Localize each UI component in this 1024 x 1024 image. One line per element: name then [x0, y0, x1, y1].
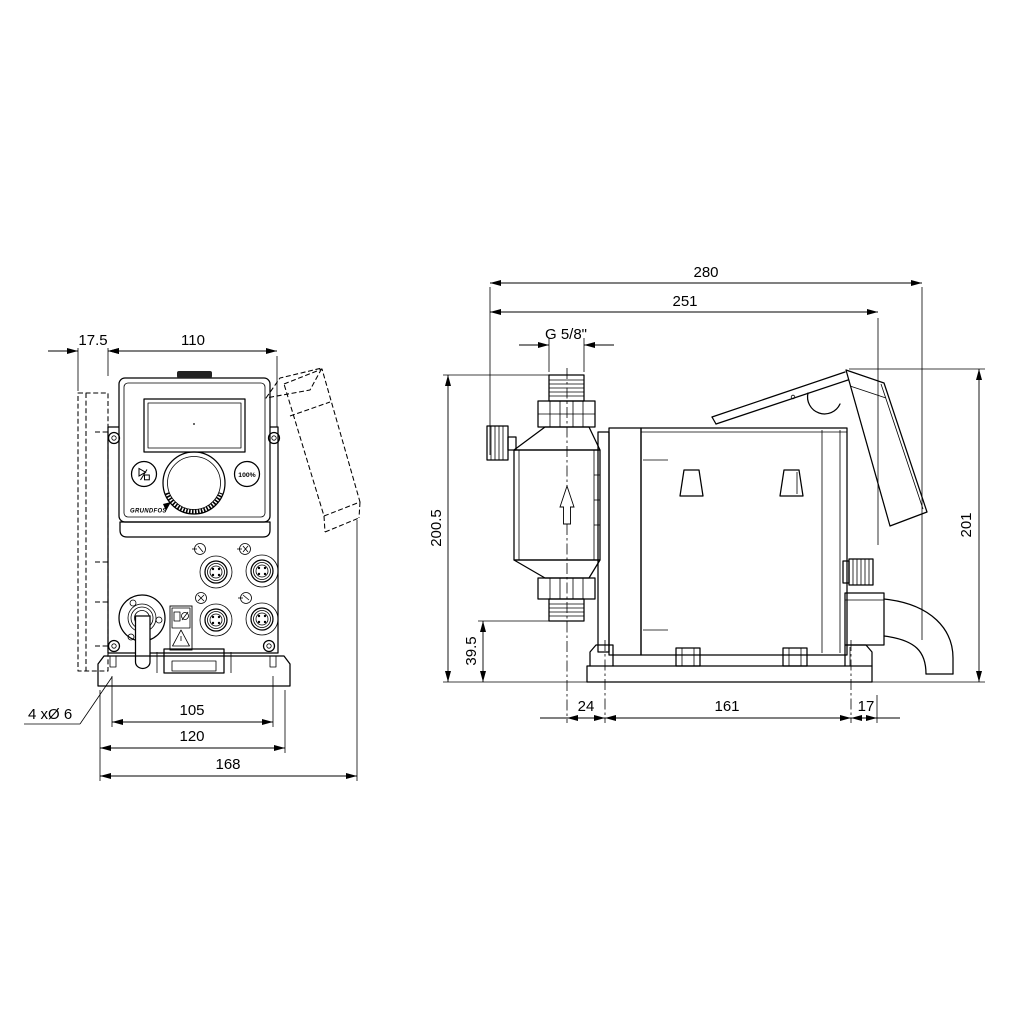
dim-label: 200.5	[428, 509, 445, 547]
screw-icon	[109, 641, 120, 652]
screw-icon	[109, 433, 120, 444]
front-view: 100% GRUNDFOS	[24, 332, 360, 781]
head-cylinder	[514, 450, 600, 560]
control-unit: 100% GRUNDFOS	[119, 371, 270, 522]
dim-slot-to-edge: 17	[851, 695, 900, 723]
dim-label: 105	[179, 702, 204, 719]
inlet-union-nut	[538, 578, 595, 599]
dim-overall-height: 200.5	[428, 375, 549, 682]
mains-plug-side	[712, 370, 927, 526]
head-console	[598, 428, 668, 655]
head-top-flare	[514, 427, 600, 450]
dim-label: 168	[215, 756, 240, 773]
note-mounting-holes: 4 xØ 6	[24, 677, 112, 724]
flow-direction-arrow-icon	[560, 486, 574, 524]
outlet-thread	[549, 375, 584, 401]
side-view: 280 251 G 5/8" 200.5 3	[428, 264, 985, 723]
drawing-canvas: 100% GRUNDFOS	[0, 0, 1024, 1024]
mounting-slot	[680, 470, 703, 496]
socket-marker-icon	[196, 593, 207, 604]
m12-socket	[200, 604, 232, 636]
m12-socket	[246, 603, 278, 635]
plug-grip-notch	[808, 393, 840, 414]
dim-label: 39.5	[463, 636, 480, 665]
cable-connector-block	[845, 593, 884, 645]
dim-label: 161	[714, 698, 739, 715]
m12-socket	[200, 556, 232, 588]
mounting-plate-front	[98, 649, 290, 686]
dosing-head	[487, 368, 600, 723]
dim-label: 251	[672, 293, 697, 310]
dim-label: 280	[693, 264, 718, 281]
dim-label: 24	[578, 698, 595, 715]
dim-label: 201	[958, 512, 975, 537]
dim-slot-pitch: 161	[605, 698, 851, 718]
technical-drawing: 100% GRUNDFOS	[0, 0, 1024, 1024]
brand-logo-text: GRUNDFOS	[130, 509, 167, 515]
dim-label: G 5/8"	[545, 326, 587, 343]
dim-label: 120	[179, 728, 204, 745]
dim-label: 17	[858, 698, 875, 715]
socket-marker-icon	[192, 544, 206, 555]
dim-valve-outlet-height: 39.5	[463, 621, 549, 682]
dim-plug-height: 201	[849, 369, 985, 682]
top-tab	[177, 371, 212, 378]
panel-lower-frame	[120, 522, 270, 537]
screw-icon	[264, 641, 275, 652]
connection-sockets	[192, 544, 278, 637]
mounting-slot	[780, 470, 803, 496]
dim-label: 110	[181, 332, 205, 349]
dim-connection-thread: G 5/8"	[519, 326, 614, 372]
dim-mount-hole-pitch: 105	[112, 676, 273, 727]
head-bottom-flare	[514, 560, 600, 578]
full-capacity-button-label: 100%	[238, 472, 255, 479]
inlet-thread	[549, 599, 584, 621]
display-cursor-dot	[193, 423, 195, 425]
side-dimensions: 280 251 G 5/8" 200.5 3	[428, 264, 985, 723]
dim-head-center-to-slot: 24	[540, 698, 605, 718]
plug-body	[846, 370, 927, 526]
mains-plug-hidden-outline	[266, 368, 360, 532]
socket-marker-icon	[237, 544, 251, 555]
mounting-holes-note: 4 xØ 6	[28, 706, 72, 723]
socket-marker-icon	[238, 593, 252, 604]
vent-valve-knob	[487, 426, 516, 460]
m12-socket	[246, 555, 278, 587]
dim-label: 17.5	[78, 332, 107, 349]
pump-head-flange	[119, 595, 165, 669]
outlet-union-nut	[538, 401, 595, 427]
drain-tube	[136, 616, 151, 669]
pump-body-side	[641, 428, 847, 655]
warning-label	[170, 606, 192, 650]
wall-bracket-hidden-outline	[78, 393, 108, 671]
power-cable	[884, 599, 953, 674]
